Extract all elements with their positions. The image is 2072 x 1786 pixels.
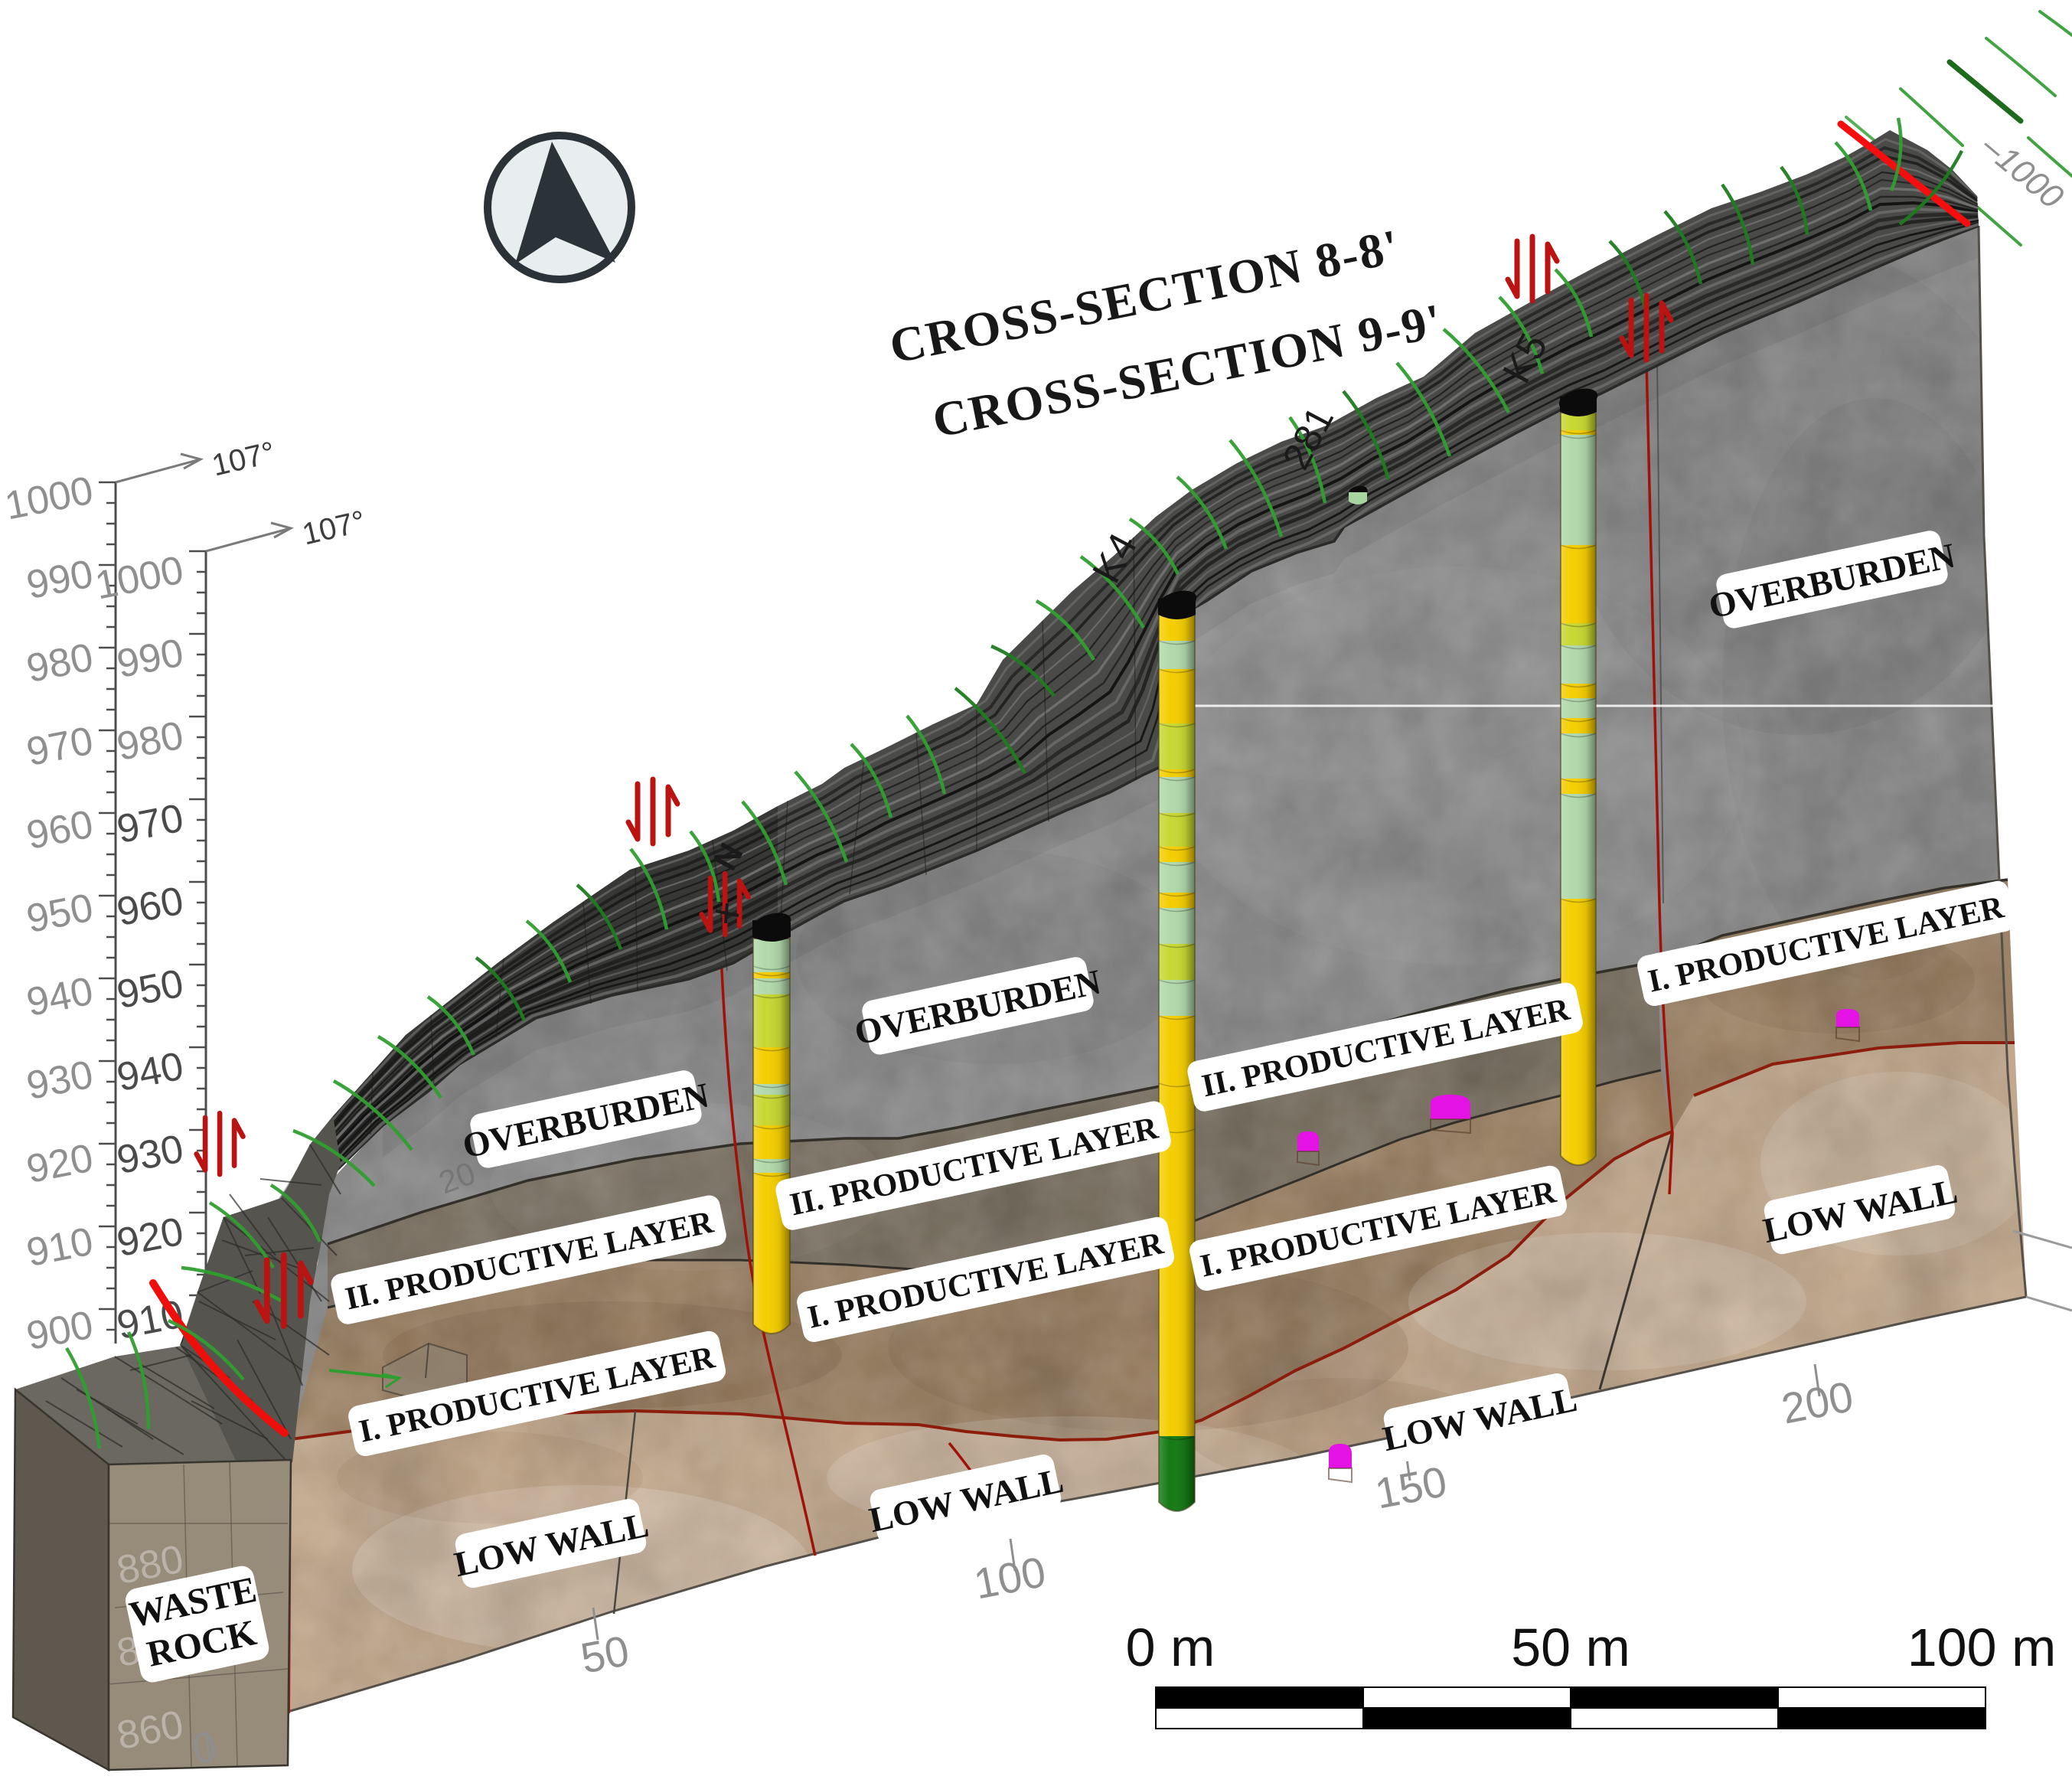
svg-text:50 m: 50 m [1511,1618,1630,1677]
svg-text:0 m: 0 m [1126,1618,1215,1677]
svg-text:100 m: 100 m [1907,1618,2057,1677]
svg-text:50: 50 [577,1626,633,1683]
